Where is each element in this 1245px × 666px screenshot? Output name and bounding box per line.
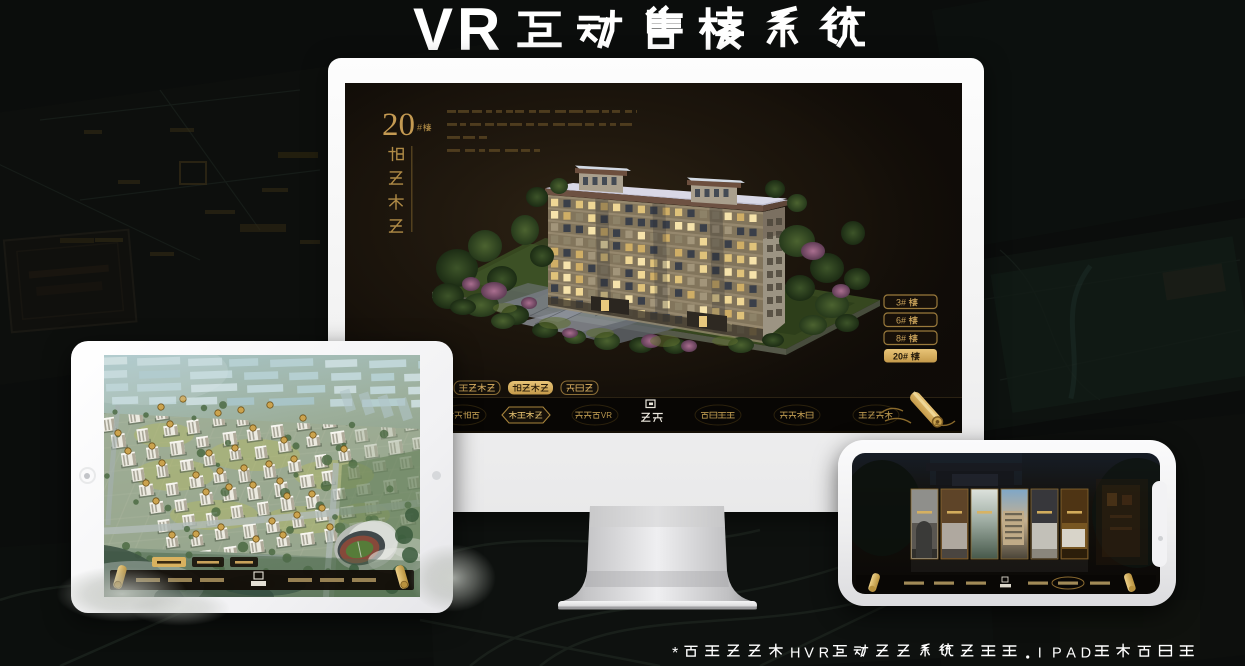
svg-text:8#: 8# <box>896 334 906 344</box>
svg-text:H: H <box>790 646 800 662</box>
svg-text:VR: VR <box>413 0 504 58</box>
svg-text:VR: VR <box>601 411 612 420</box>
svg-text:20#: 20# <box>893 352 908 362</box>
svg-text:P: P <box>1052 646 1062 662</box>
svg-text:D: D <box>1081 646 1091 662</box>
svg-text:3#: 3# <box>896 298 906 308</box>
svg-text:V: V <box>804 646 814 662</box>
svg-text:#: # <box>417 123 422 133</box>
svg-text:20: 20 <box>382 107 415 143</box>
svg-text:6#: 6# <box>896 316 906 326</box>
svg-text:I: I <box>1038 646 1042 662</box>
svg-text:R: R <box>819 646 829 662</box>
svg-text:A: A <box>1066 646 1076 662</box>
svg-text:*: * <box>672 645 678 662</box>
